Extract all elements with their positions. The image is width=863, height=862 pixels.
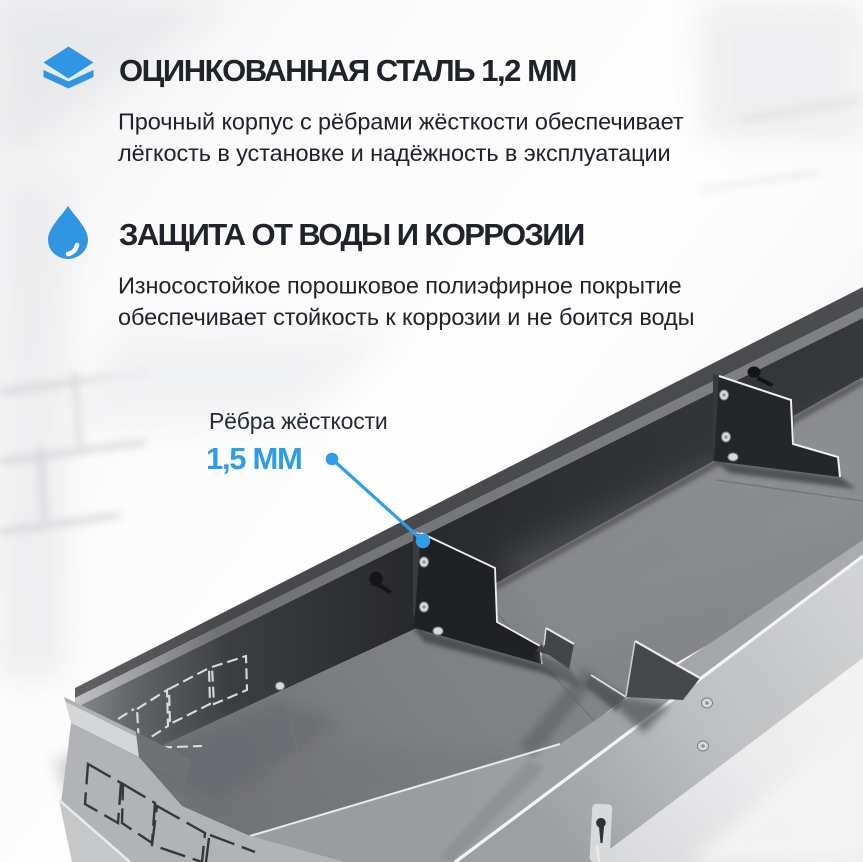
svg-text:Прочный корпус с рёбрами жёстк: Прочный корпус с рёбрами жёсткости обесп… [118,109,684,135]
svg-text:лёгкость в установке и надёжно: лёгкость в установке и надёжность в эксп… [118,140,671,166]
svg-text:ЗАЩИТА ОТ ВОДЫ И КОРРОЗИИ: ЗАЩИТА ОТ ВОДЫ И КОРРОЗИИ [119,217,584,252]
svg-text:Рёбра жёсткости: Рёбра жёсткости [209,408,388,434]
svg-text:ОЦИНКОВАННАЯ СТАЛЬ 1,2 ММ: ОЦИНКОВАННАЯ СТАЛЬ 1,2 ММ [119,53,576,88]
svg-text:обеспечивает стойкость к корро: обеспечивает стойкость к коррозии и не б… [118,304,694,330]
svg-text:1,5 ММ: 1,5 ММ [206,441,302,476]
svg-text:Износостойкое порошковое полиэ: Износостойкое порошковое полиэфирное пок… [118,273,682,299]
